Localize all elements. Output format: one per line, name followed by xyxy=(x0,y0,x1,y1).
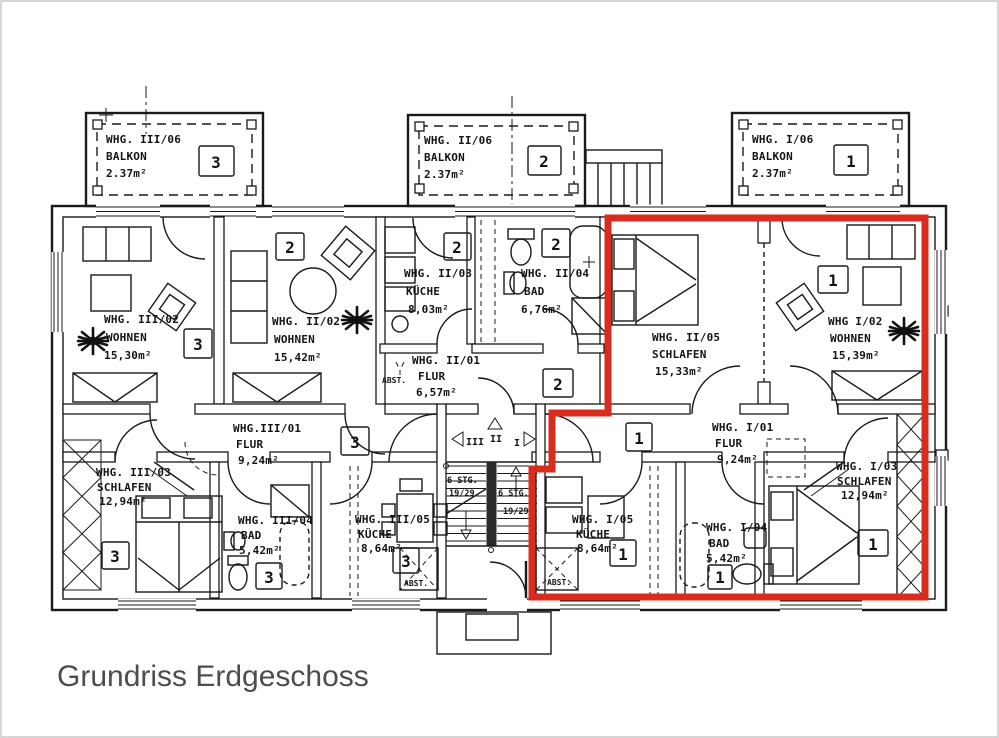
image-border xyxy=(1,1,998,737)
room-type: FLUR xyxy=(418,370,445,383)
room-type: BAD xyxy=(524,285,545,298)
plan-caption: Grundriss Erdgeschoss xyxy=(57,660,369,693)
room-area: 5,42m² xyxy=(706,552,747,565)
room-type: FLUR xyxy=(715,437,742,450)
balcony-3-area: 2.37m² xyxy=(106,167,147,180)
room-area: 15,42m² xyxy=(274,351,322,364)
floor-plan-drawing: WHG. III/06 BALKON 2.37m² 3 WHG. II/06 B… xyxy=(0,0,999,738)
floor-plan-page: WHG. III/06 BALKON 2.37m² 3 WHG. II/06 B… xyxy=(0,0,999,738)
room-area: 8,03m² xyxy=(408,303,449,316)
room-unit: WHG. I/03 xyxy=(836,460,897,473)
room-unit: WHG. II/04 xyxy=(521,267,589,280)
room-area: 6,76m² xyxy=(521,303,562,316)
room-unit: WHG. I/04 xyxy=(706,521,768,534)
room-type: SCHLAFEN xyxy=(837,475,892,488)
apartment-number: 2 xyxy=(285,238,295,257)
apartment-number: 1 xyxy=(715,568,725,587)
apartment-number: 1 xyxy=(828,271,838,290)
room-unit: WHG. III/05 xyxy=(355,513,430,526)
apartment-number: 3 xyxy=(264,568,274,587)
room-unit: WHG. II/02 xyxy=(272,315,340,328)
room-area: 9,24m² xyxy=(717,453,758,466)
room-unit: WHG. III/02 xyxy=(104,313,179,326)
room-area: 15,39m² xyxy=(832,349,880,362)
balcony-1-area: 2.37m² xyxy=(752,167,793,180)
room-type: FLUR xyxy=(236,438,263,451)
room-area: 6,57m² xyxy=(416,386,457,399)
direction-left-label: III xyxy=(466,437,484,448)
apartment-number: 3 xyxy=(401,552,411,571)
plant-icon xyxy=(889,318,919,344)
room-area: 12,94m² xyxy=(99,495,147,508)
room-unit: WHG. III/04 xyxy=(238,514,313,527)
room-unit: WHG. I/01 xyxy=(712,421,774,434)
room-unit: WHG.III/01 xyxy=(233,422,301,435)
room-type: KÜCHE xyxy=(406,284,440,298)
stair-flight-left-steps: 6 STG. xyxy=(447,476,478,486)
apartment-number: 2 xyxy=(553,375,563,394)
storage-label: ABST. xyxy=(547,578,571,587)
room-area: 5,42m² xyxy=(239,544,280,557)
apartment-number: 1 xyxy=(618,545,628,564)
room-type: KÜCHE xyxy=(576,527,610,541)
balcony-2-area: 2.37m² xyxy=(424,168,465,181)
room-unit: WHG I/02 xyxy=(828,315,883,328)
storage-label: ABST. xyxy=(382,376,406,385)
balcony-2-room: BALKON xyxy=(424,151,465,164)
room-type: SCHLAFEN xyxy=(97,481,152,494)
room-area: 8,64m² xyxy=(577,542,618,555)
apartment-number: 3 xyxy=(350,433,360,452)
apartment-number: 2 xyxy=(551,235,561,254)
direction-up-label: II xyxy=(490,434,502,445)
stair-rail xyxy=(487,462,497,546)
room-type: BAD xyxy=(241,529,262,542)
storage-label: ABST. xyxy=(404,579,428,588)
room-type: WOHNEN xyxy=(830,332,871,345)
room-type: KÜCHE xyxy=(358,527,392,541)
apartment-number: 3 xyxy=(193,335,203,354)
stair-flight-right-dim: 19/29 xyxy=(503,507,529,517)
balcony-3-room: BALKON xyxy=(106,150,147,163)
apartment-number: 1 xyxy=(634,429,644,448)
balcony-3-unit: WHG. III/06 xyxy=(106,133,181,146)
stair-flight-right-steps: 6 STG. xyxy=(498,489,529,499)
room-unit: WHG. II/03 xyxy=(404,267,472,280)
room-unit: WHG. II/05 xyxy=(652,331,720,344)
apartment-number: 3 xyxy=(110,547,120,566)
balcony-2-number: 2 xyxy=(539,152,549,171)
room-unit: WHG. I/05 xyxy=(572,513,633,526)
balcony-3-number: 3 xyxy=(211,153,221,172)
direction-right-label: I xyxy=(514,438,520,449)
stair-flight-left-dim: 19/29 xyxy=(449,489,475,499)
room-area: 9,24m² xyxy=(238,454,279,467)
balcony-1-unit: WHG. I/06 xyxy=(752,133,814,146)
room-area: 12,94m² xyxy=(841,489,889,502)
balcony-1-number: 1 xyxy=(846,152,856,171)
room-type: BAD xyxy=(709,537,730,550)
room-type: WOHNEN xyxy=(274,333,315,346)
apartment-number: 1 xyxy=(868,535,878,554)
room-type: SCHLAFEN xyxy=(652,348,707,361)
balcony-2-unit: WHG. II/06 xyxy=(424,134,492,147)
room-unit: WHG. III/03 xyxy=(96,466,171,479)
room-area: 15,30m² xyxy=(104,349,152,362)
apartment-number: 2 xyxy=(452,238,462,257)
room-type: WOHNEN xyxy=(106,331,147,344)
room-area: 15,33m² xyxy=(655,365,703,378)
room-unit: WHG. II/01 xyxy=(412,354,480,367)
plant-icon xyxy=(342,307,372,333)
balcony-1-room: BALKON xyxy=(752,150,793,163)
